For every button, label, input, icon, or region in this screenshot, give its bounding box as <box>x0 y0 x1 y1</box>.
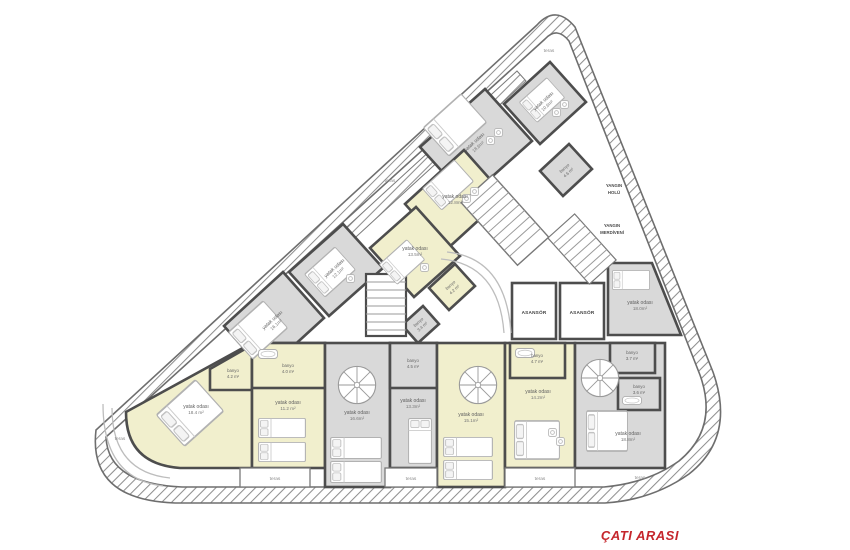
room-area: 18.0m² <box>633 306 648 311</box>
chair-icon <box>421 264 429 272</box>
spiral-stair-icon <box>581 359 618 396</box>
room-area: 14.2m² <box>531 395 546 400</box>
middle-section <box>441 252 681 339</box>
banyo-label: banyo <box>531 353 543 358</box>
fire-stairs-label: YANGIN <box>604 223 620 228</box>
terrace-label: teras <box>115 436 126 442</box>
bed-icon <box>444 437 493 456</box>
terrace-label: teras <box>635 475 646 481</box>
chair-icon <box>557 438 565 446</box>
banyo-area: 4.7 m² <box>531 359 544 364</box>
terrace-label: teras <box>535 476 546 482</box>
fire-stairs-label: MERDİVENİ <box>600 230 624 235</box>
banyo-label: banyo <box>626 350 638 355</box>
chair-icon <box>347 275 355 283</box>
bed-icon <box>444 460 493 479</box>
spiral-stair-icon <box>338 366 375 403</box>
bed-icon <box>331 438 382 459</box>
floor-plan-page: yatak odası 10.6m² yatak odası 18.6m² ya… <box>0 0 850 550</box>
bed-icon <box>259 442 306 461</box>
banyo-area: 3.6 m² <box>633 390 646 395</box>
banyo-label: banyo <box>633 384 645 389</box>
chair-icon <box>561 101 569 109</box>
terrace-label: teras <box>385 178 396 184</box>
room-area: 11.2 m² <box>280 406 296 411</box>
spiral-stair-icon <box>459 366 496 403</box>
room-area: 15.1m² <box>464 418 479 423</box>
chair-icon <box>549 429 557 437</box>
banyo-label: banyo <box>407 358 419 363</box>
banyo-area: 3.7 m² <box>626 356 639 361</box>
banyo-label: banyo <box>227 368 239 373</box>
room-area: 13.5m² <box>408 252 423 257</box>
page-title: ÇATI ARASI <box>601 528 679 543</box>
elevator-label: ASANSÖR <box>570 309 595 315</box>
fire-hall-label: YANGIN <box>606 183 622 188</box>
bed-icon <box>259 418 306 437</box>
bed-icon <box>331 462 382 483</box>
room-area: 18.8m² <box>621 437 636 442</box>
banyo-area: 4.0 m² <box>282 369 295 374</box>
banyo-0-shape <box>540 144 592 196</box>
straight-staircase-icon <box>366 274 406 336</box>
terrace-label: teras <box>406 476 417 482</box>
chair-icon <box>487 137 495 145</box>
bed-icon <box>515 421 560 459</box>
room-area: 12.8m² <box>448 200 463 205</box>
banyo-area: 4.5 m² <box>407 364 420 369</box>
bed-icon <box>409 419 432 464</box>
floor-plan-svg: yatak odası 10.6m² yatak odası 18.6m² ya… <box>0 0 850 550</box>
terrace-label: teras <box>270 476 281 482</box>
banyo-label: banyo <box>282 363 294 368</box>
bed-icon <box>612 270 649 289</box>
room-area: 18.4 m² <box>188 410 204 415</box>
bathtub-icon <box>623 396 642 404</box>
bathtub-icon <box>259 350 278 359</box>
banyo-area: 4.2 m² <box>227 374 240 379</box>
terrace-label: teras <box>544 48 555 54</box>
chair-icon <box>553 109 561 117</box>
room-area: 13.3m² <box>406 404 421 409</box>
room-area: 16.6m² <box>350 416 365 421</box>
chair-icon <box>495 129 503 137</box>
fire-hall-label: HOLÜ <box>608 190 620 195</box>
elevator-label: ASANSÖR <box>522 309 547 315</box>
chair-icon <box>471 188 479 196</box>
